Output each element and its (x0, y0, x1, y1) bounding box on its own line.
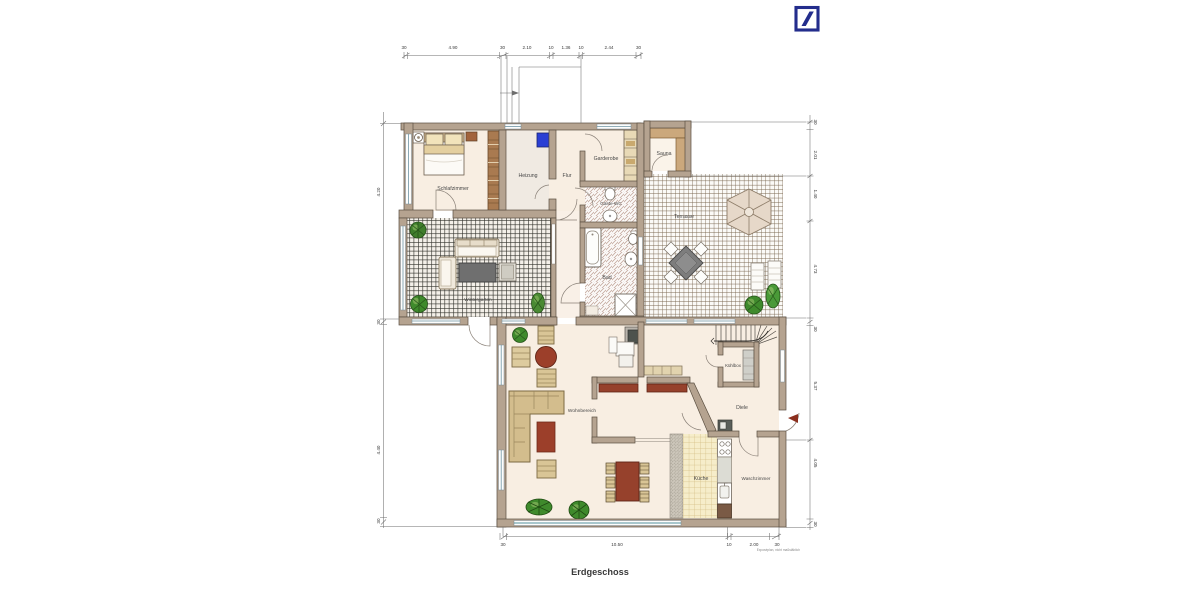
svg-text:5.37: 5.37 (813, 382, 818, 391)
svg-text:Flur: Flur (563, 173, 572, 179)
svg-text:30: 30 (636, 45, 642, 50)
svg-text:Wintergarten: Wintergarten (464, 297, 492, 303)
svg-text:Exposéplan, nicht maßstäblich: Exposéplan, nicht maßstäblich (757, 548, 800, 552)
svg-text:1.40: 1.40 (813, 190, 818, 199)
svg-text:2.01: 2.01 (813, 151, 818, 160)
svg-text:Waschzimmer: Waschzimmer (742, 476, 771, 481)
svg-text:Kühlbox: Kühlbox (725, 363, 742, 368)
svg-text:10.50: 10.50 (611, 542, 623, 547)
svg-text:30: 30 (401, 45, 407, 50)
svg-text:10: 10 (726, 542, 732, 547)
svg-text:10: 10 (548, 45, 554, 50)
svg-text:Garderobe: Garderobe (594, 156, 619, 162)
svg-text:2.44: 2.44 (605, 45, 614, 50)
svg-text:Küche: Küche (694, 476, 709, 482)
svg-text:1.36: 1.36 (562, 45, 571, 50)
svg-text:4.73: 4.73 (813, 265, 818, 274)
svg-text:Wohnbereich: Wohnbereich (568, 408, 597, 414)
svg-text:Erdgeschoss: Erdgeschoss (571, 567, 629, 577)
svg-text:30: 30 (376, 319, 381, 325)
svg-text:30: 30 (813, 326, 818, 332)
svg-text:Sauna: Sauna (656, 151, 671, 157)
svg-text:4.05: 4.05 (813, 459, 818, 468)
svg-text:30: 30 (813, 119, 818, 125)
svg-text:Diele: Diele (736, 405, 748, 411)
svg-text:4.20: 4.20 (376, 187, 381, 196)
svg-text:30: 30 (500, 45, 506, 50)
svg-text:Terrasse: Terrasse (674, 214, 694, 220)
svg-text:Heizung: Heizung (518, 173, 537, 179)
svg-text:4.90: 4.90 (449, 45, 458, 50)
svg-text:30: 30 (500, 542, 506, 547)
svg-text:Gäste-WC: Gäste-WC (600, 201, 622, 206)
svg-text:2.00: 2.00 (750, 542, 759, 547)
svg-text:30: 30 (376, 518, 381, 524)
svg-text:Bad: Bad (602, 275, 611, 281)
svg-text:2.10: 2.10 (523, 45, 532, 50)
svg-text:30: 30 (774, 542, 780, 547)
svg-text:4.40: 4.40 (376, 445, 381, 454)
svg-text:30: 30 (813, 521, 818, 527)
svg-text:10: 10 (578, 45, 584, 50)
